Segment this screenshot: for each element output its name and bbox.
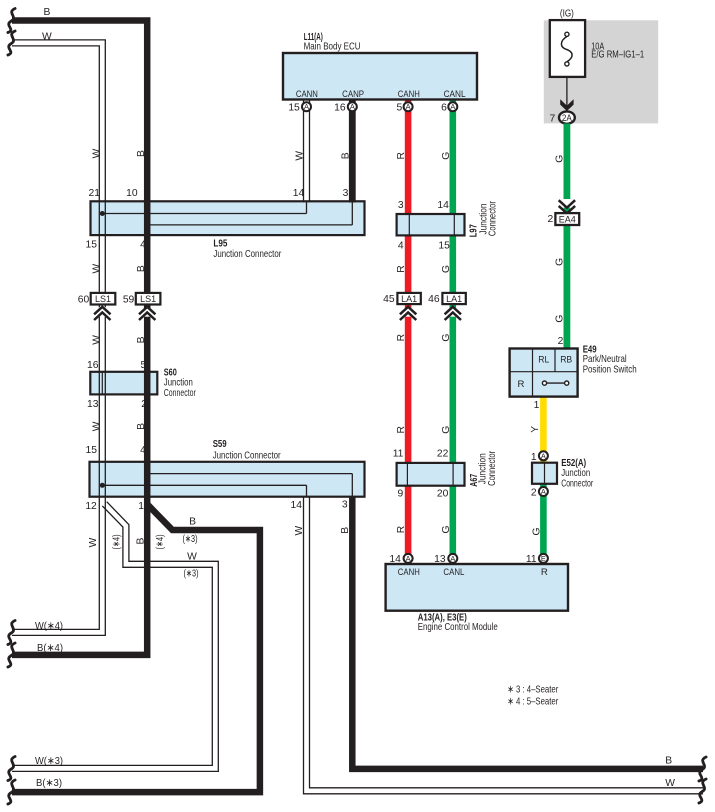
svg-text:(IG): (IG) <box>560 9 574 20</box>
svg-text:LS1: LS1 <box>95 294 111 305</box>
svg-text:W: W <box>91 264 102 274</box>
svg-text:10: 10 <box>126 188 138 199</box>
svg-text:R: R <box>518 379 525 390</box>
svg-text:R: R <box>396 334 407 341</box>
svg-text:G: G <box>441 426 452 434</box>
svg-text:(∗3): (∗3) <box>184 568 199 579</box>
svg-text:A: A <box>304 102 309 111</box>
svg-text:59: 59 <box>123 295 135 306</box>
svg-text:G: G <box>532 527 543 535</box>
svg-text:W: W <box>42 32 52 43</box>
svg-text:A: A <box>350 102 355 111</box>
svg-text:Main Body ECU: Main Body ECU <box>304 41 361 52</box>
svg-text:W: W <box>187 552 197 563</box>
svg-text:A: A <box>406 102 411 111</box>
svg-text:Connector: Connector <box>164 388 196 399</box>
svg-text:Y: Y <box>530 426 541 433</box>
svg-text:∗ 3 : 4–Seater: ∗ 3 : 4–Seater <box>507 685 558 696</box>
svg-text:15: 15 <box>288 102 300 113</box>
svg-text:13: 13 <box>87 399 99 410</box>
svg-text:CANP: CANP <box>342 89 364 100</box>
svg-text:5: 5 <box>396 102 402 113</box>
svg-text:W: W <box>91 335 102 345</box>
svg-text:15: 15 <box>86 445 98 456</box>
svg-text:2: 2 <box>547 214 553 225</box>
svg-text:5: 5 <box>140 360 146 371</box>
svg-text:14: 14 <box>293 188 305 199</box>
svg-text:2: 2 <box>141 399 147 410</box>
svg-text:W: W <box>88 537 99 547</box>
svg-text:CANH: CANH <box>398 89 420 100</box>
svg-text:14: 14 <box>291 500 303 511</box>
svg-text:11: 11 <box>393 449 404 460</box>
svg-text:11: 11 <box>526 554 537 565</box>
svg-text:Junction Connector: Junction Connector <box>213 249 281 260</box>
svg-text:16: 16 <box>334 102 346 113</box>
svg-text:B: B <box>189 517 196 528</box>
svg-text:W: W <box>294 525 305 535</box>
svg-text:(∗4): (∗4) <box>112 535 123 550</box>
svg-text:G: G <box>555 155 566 163</box>
svg-text:G: G <box>555 315 566 323</box>
svg-text:Connector: Connector <box>487 450 498 485</box>
svg-text:Engine Control Module: Engine Control Module <box>418 622 498 633</box>
svg-text:4: 4 <box>140 240 146 251</box>
svg-text:60: 60 <box>78 295 90 306</box>
svg-text:2: 2 <box>531 488 537 499</box>
svg-text:CANH: CANH <box>398 567 420 578</box>
svg-text:B: B <box>136 265 147 272</box>
svg-text:R: R <box>396 426 407 433</box>
svg-text:Position Switch: Position Switch <box>583 364 637 375</box>
svg-text:A: A <box>541 487 546 496</box>
svg-text:W(∗4): W(∗4) <box>35 621 63 632</box>
svg-text:R: R <box>396 152 407 159</box>
svg-text:4: 4 <box>140 445 146 456</box>
svg-text:1: 1 <box>534 400 540 411</box>
svg-text:2: 2 <box>558 336 564 347</box>
svg-text:CANN: CANN <box>296 89 318 100</box>
svg-text:46: 46 <box>428 294 440 305</box>
svg-text:RB: RB <box>560 354 572 365</box>
svg-text:A: A <box>541 451 546 460</box>
svg-text:LS1: LS1 <box>140 294 156 305</box>
svg-text:22: 22 <box>437 449 449 460</box>
svg-text:(∗4): (∗4) <box>155 535 166 550</box>
svg-text:A: A <box>406 554 411 563</box>
svg-text:G: G <box>441 265 452 273</box>
svg-text:3: 3 <box>398 200 404 211</box>
svg-text:LA1: LA1 <box>446 294 462 305</box>
svg-text:Junction Connector: Junction Connector <box>213 450 281 461</box>
svg-text:RL: RL <box>538 354 550 365</box>
svg-text:6: 6 <box>441 102 447 113</box>
svg-text:4: 4 <box>398 241 404 252</box>
svg-text:14: 14 <box>389 554 401 565</box>
svg-text:3: 3 <box>343 188 349 199</box>
svg-text:Junction: Junction <box>164 378 193 389</box>
svg-text:R: R <box>541 567 548 578</box>
svg-text:B(∗4): B(∗4) <box>37 643 63 654</box>
svg-text:B: B <box>340 527 351 534</box>
svg-text:15: 15 <box>438 241 450 252</box>
svg-text:Connector: Connector <box>561 479 593 490</box>
svg-text:W: W <box>295 151 306 161</box>
svg-text:9: 9 <box>397 488 403 499</box>
svg-text:W: W <box>91 421 102 431</box>
svg-text:20: 20 <box>437 488 449 499</box>
svg-text:CANL: CANL <box>443 567 465 578</box>
svg-text:CANL: CANL <box>444 89 467 100</box>
svg-text:45: 45 <box>383 294 395 305</box>
svg-text:15: 15 <box>86 240 98 251</box>
svg-text:B: B <box>136 423 147 430</box>
svg-text:13: 13 <box>434 554 446 565</box>
svg-text:R: R <box>396 265 407 272</box>
svg-text:B(∗3): B(∗3) <box>36 778 62 789</box>
svg-text:∗ 4 : 5–Seater: ∗ 4 : 5–Seater <box>507 697 558 708</box>
svg-text:G: G <box>441 334 452 342</box>
svg-text:EA4: EA4 <box>559 214 577 225</box>
svg-text:R: R <box>396 526 407 533</box>
svg-text:E/G RM–IG1–1: E/G RM–IG1–1 <box>591 50 644 61</box>
svg-text:12: 12 <box>85 501 97 512</box>
svg-text:W: W <box>665 778 675 789</box>
svg-text:A: A <box>450 102 455 111</box>
svg-text:Connector: Connector <box>488 201 499 236</box>
svg-text:(∗3): (∗3) <box>183 534 198 545</box>
svg-text:21: 21 <box>89 188 101 199</box>
svg-text:7: 7 <box>549 114 555 125</box>
svg-text:1: 1 <box>138 501 144 512</box>
svg-text:B: B <box>665 755 672 766</box>
svg-text:14: 14 <box>437 200 449 211</box>
svg-text:LA1: LA1 <box>401 294 417 305</box>
svg-text:G: G <box>441 525 452 533</box>
svg-text:B: B <box>136 336 147 343</box>
svg-text:B: B <box>44 7 51 18</box>
svg-text:E: E <box>541 554 546 563</box>
svg-text:1: 1 <box>531 452 537 463</box>
svg-text:Junction: Junction <box>561 468 590 479</box>
svg-text:B: B <box>136 537 147 544</box>
svg-text:S59: S59 <box>213 439 227 450</box>
svg-text:A: A <box>450 554 455 563</box>
svg-text:G: G <box>441 152 452 160</box>
svg-text:B: B <box>136 150 147 157</box>
svg-text:16: 16 <box>87 360 99 371</box>
svg-text:W(∗3): W(∗3) <box>35 756 63 767</box>
svg-text:2A: 2A <box>562 113 572 124</box>
svg-text:3: 3 <box>342 500 348 511</box>
svg-text:B: B <box>340 152 351 159</box>
svg-text:W: W <box>91 148 102 158</box>
svg-text:G: G <box>555 258 566 266</box>
